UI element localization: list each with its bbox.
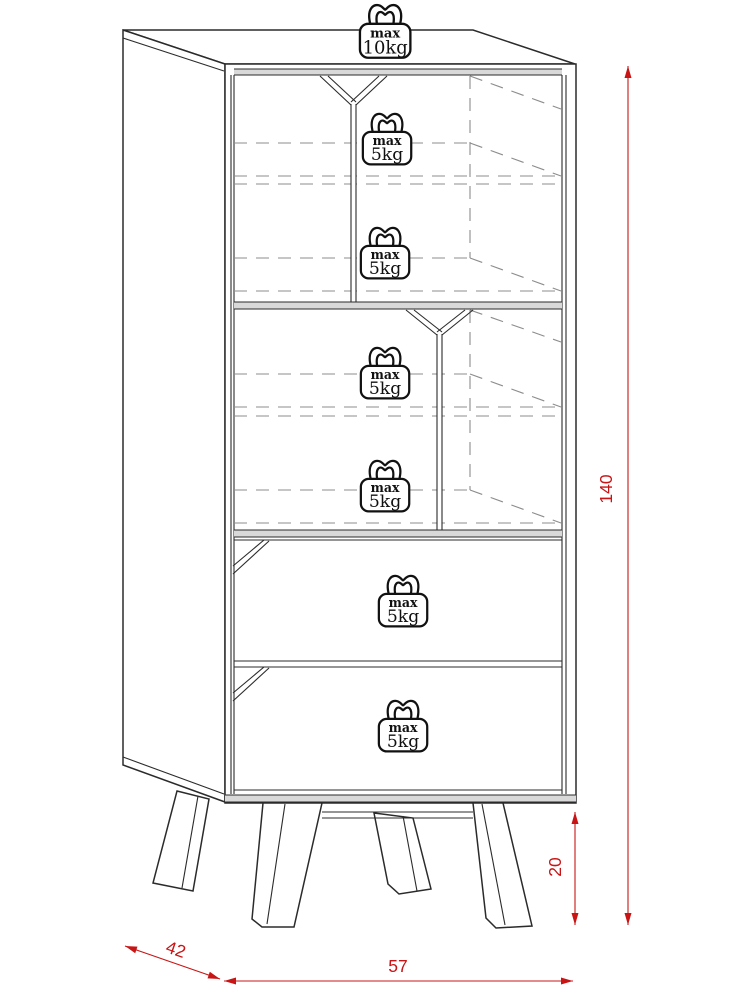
front-frame — [225, 64, 576, 803]
svg-text:10kg: 10kg — [363, 37, 408, 58]
weight-badge-top: max 10kg — [360, 5, 410, 58]
leg-back-left — [153, 791, 209, 891]
dim-width: 57 — [388, 956, 407, 976]
svg-text:5kg: 5kg — [369, 259, 401, 279]
furniture-dimension-diagram: max 10kg max 5kg max 5kg max 5kg max 5kg… — [0, 0, 750, 1000]
middle-shelf — [234, 302, 562, 309]
leg-front-left — [252, 803, 322, 927]
cabinet-drawing: max 10kg max 5kg max 5kg max 5kg max 5kg… — [0, 0, 750, 1000]
legs — [153, 791, 532, 928]
leg-back-middle — [374, 813, 431, 894]
svg-text:5kg: 5kg — [371, 145, 403, 165]
svg-text:5kg: 5kg — [387, 732, 419, 752]
svg-text:5kg: 5kg — [387, 607, 419, 627]
dim-leg-height: 20 — [545, 857, 565, 877]
drawer-top-shelf — [234, 530, 562, 537]
left-side-panel — [123, 30, 225, 802]
svg-text:5kg: 5kg — [369, 492, 401, 512]
dim-total-height: 140 — [596, 474, 616, 503]
svg-text:5kg: 5kg — [369, 379, 401, 399]
bottom-panel-edge — [225, 795, 576, 802]
dim-depth: 42 — [163, 937, 188, 962]
